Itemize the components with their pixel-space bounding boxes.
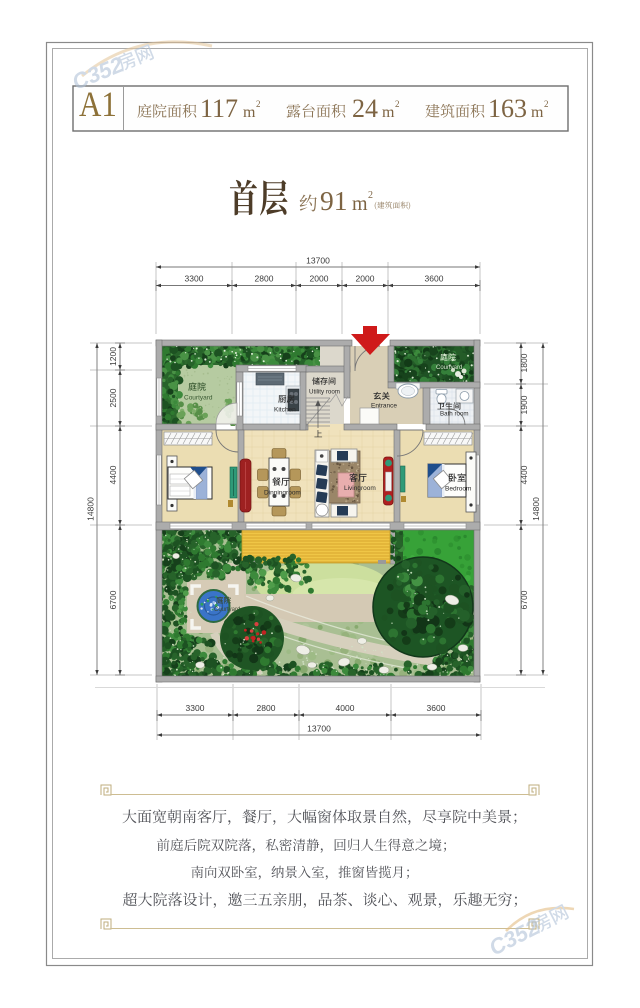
svg-text:1200: 1200 [108,347,118,366]
svg-text:6700: 6700 [108,590,118,609]
svg-text:163: 163 [488,94,527,123]
svg-text:Courtyard: Courtyard [184,395,213,402]
svg-text:14800: 14800 [531,497,541,521]
svg-text:Bath room: Bath room [440,411,469,418]
svg-text:m: m [382,104,395,121]
svg-text:2500: 2500 [108,388,118,407]
svg-text:Dinningroom: Dinningroom [264,490,301,497]
svg-text:2000: 2000 [356,274,375,284]
svg-text:6700: 6700 [519,590,529,609]
svg-text:13700: 13700 [307,724,331,734]
svg-text:1900: 1900 [519,395,529,414]
svg-text:2: 2 [395,99,400,109]
svg-text:3300: 3300 [185,274,204,284]
svg-text:14800: 14800 [86,497,96,521]
svg-text:Courtyard: Courtyard [436,365,462,371]
svg-text:24: 24 [352,94,378,123]
svg-text:1800: 1800 [519,353,529,372]
svg-text:m: m [531,104,544,121]
svg-text:2: 2 [368,190,373,201]
svg-text:m: m [243,104,256,121]
svg-text:117: 117 [200,94,238,123]
svg-text:4000: 4000 [336,703,355,713]
svg-text:2000: 2000 [310,274,329,284]
svg-text:2800: 2800 [255,274,274,284]
svg-text:Bedroom: Bedroom [445,486,471,493]
svg-text:3600: 3600 [427,703,446,713]
svg-text:91: 91 [320,185,348,216]
svg-text:3600: 3600 [425,274,444,284]
svg-text:3300: 3300 [186,703,205,713]
svg-text:m: m [352,193,368,215]
svg-text:Entrance: Entrance [371,403,397,410]
svg-text:1: 1 [101,85,116,125]
svg-text:Utility room: Utility room [309,389,340,396]
svg-text:2: 2 [544,99,549,109]
svg-text:13700: 13700 [306,256,330,266]
svg-text:4400: 4400 [108,465,118,484]
svg-text:4400: 4400 [519,465,529,484]
svg-text:2: 2 [256,99,261,109]
svg-text:Livingroom: Livingroom [344,485,376,492]
svg-text:Kitchen: Kitchen [274,407,296,414]
svg-text:2800: 2800 [257,703,276,713]
